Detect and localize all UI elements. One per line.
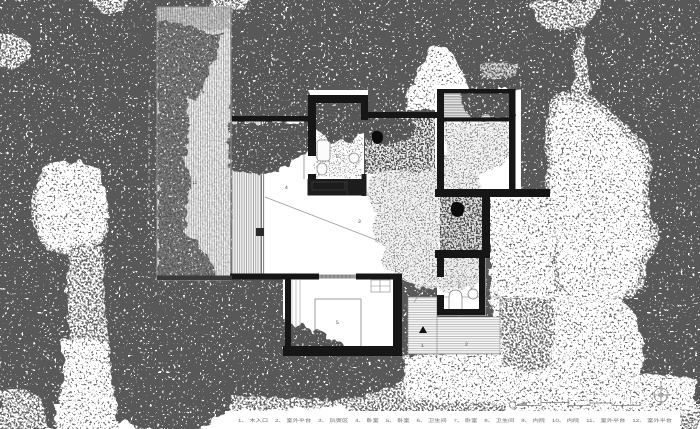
svg-text:4: 4	[285, 185, 288, 191]
svg-text:6: 6	[458, 284, 461, 290]
svg-text:7: 7	[505, 154, 508, 160]
svg-text:8: 8	[336, 154, 339, 160]
svg-text:2: 2	[465, 342, 468, 348]
svg-text:12: 12	[192, 180, 198, 185]
svg-text:1、 木入口 2、 室外平台 3、 玩耍区: 1、 木入口 2、 室外平台 3、 玩耍区 4、 卧室 5、 卧室 6、 卫生间…	[238, 418, 673, 423]
svg-text:1: 1	[421, 343, 424, 349]
svg-text:3: 3	[358, 219, 361, 225]
svg-text:5: 5	[336, 320, 339, 326]
